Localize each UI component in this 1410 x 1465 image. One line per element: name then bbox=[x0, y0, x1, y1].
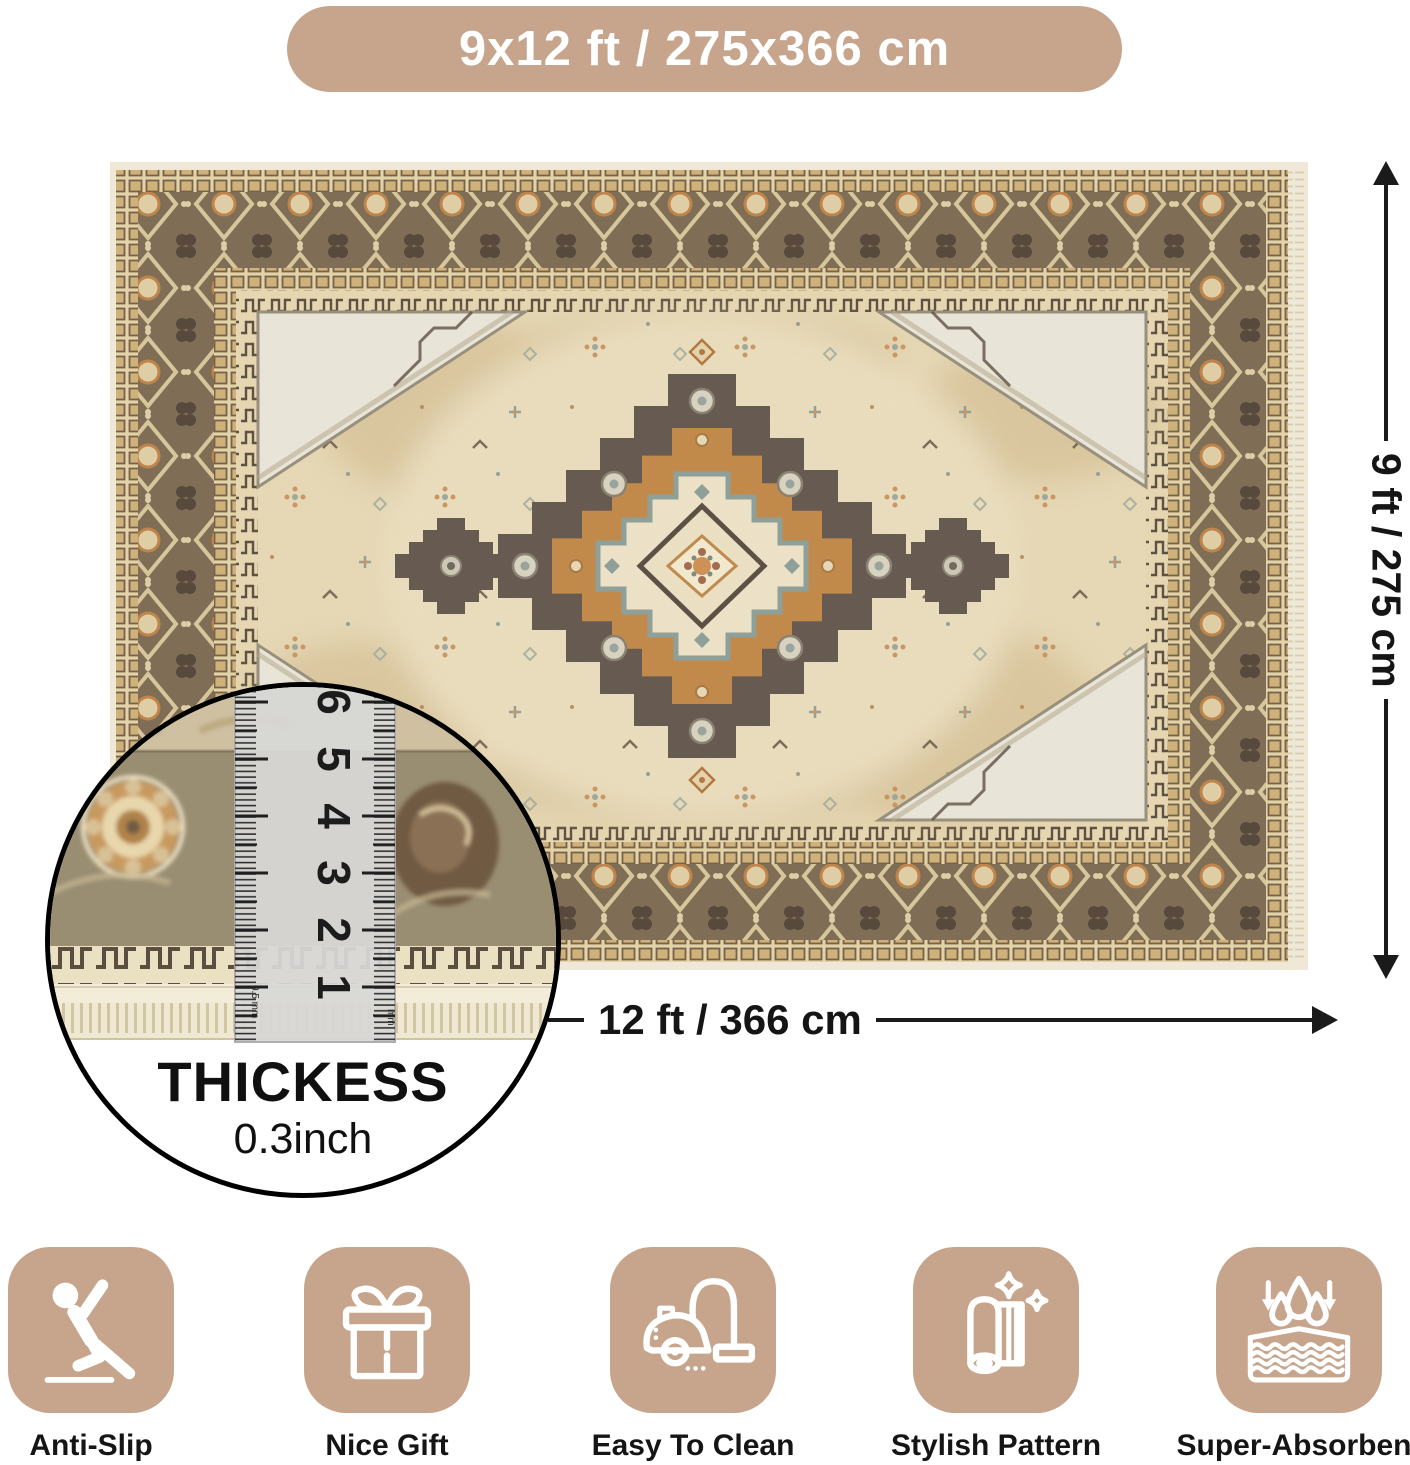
feature-nice-gift: Nice Gift bbox=[257, 1247, 517, 1463]
height-dimension-label: 9 ft / 275 cm bbox=[1363, 441, 1410, 700]
feature-easy-to-clean: Easy To Clean bbox=[563, 1247, 823, 1463]
thickness-inset: 1 2 3 4 5 6 0.5 mm mm THICKESS 0.3inch bbox=[45, 682, 561, 1198]
height-dimension-line bbox=[1384, 699, 1389, 955]
feature-label: Super-Absorbent bbox=[1176, 1429, 1410, 1463]
width-dimension-line bbox=[548, 1018, 584, 1023]
feature-label: Easy To Clean bbox=[592, 1429, 795, 1463]
ruler-number: 3 bbox=[308, 860, 360, 886]
width-dimension-line bbox=[876, 1018, 1312, 1023]
thickness-value: 0.3inch bbox=[234, 1115, 373, 1163]
feature-stylish-pattern: Stylish Pattern bbox=[866, 1247, 1126, 1463]
ruler-number: 5 bbox=[308, 746, 360, 772]
feature-icon-tile bbox=[1216, 1247, 1382, 1413]
thickness-ruler: 1 2 3 4 5 6 0.5 mm mm bbox=[235, 687, 396, 1042]
ruler-number: 4 bbox=[308, 803, 360, 829]
water-drops-icon bbox=[1235, 1266, 1363, 1394]
height-dimension: 9 ft / 275 cm bbox=[1362, 161, 1410, 979]
feature-icon-tile bbox=[913, 1247, 1079, 1413]
arrow-up-icon bbox=[1373, 161, 1399, 185]
width-dimension: 12 ft / 366 cm bbox=[548, 992, 1338, 1048]
ruler-left-unit: 0.5 mm bbox=[249, 985, 260, 1018]
feature-label: Nice Gift bbox=[325, 1429, 448, 1463]
anti-slip-icon bbox=[27, 1266, 155, 1394]
arrow-right-icon bbox=[1312, 1006, 1338, 1034]
ruler-number: 6 bbox=[308, 689, 360, 715]
gift-icon bbox=[323, 1266, 451, 1394]
feature-icon-tile bbox=[610, 1247, 776, 1413]
ruler-number: 1 bbox=[308, 974, 360, 1000]
rug-product-infographic: 9x12 ft / 275x366 cm bbox=[0, 0, 1410, 1465]
size-badge: 9x12 ft / 275x366 cm bbox=[287, 6, 1122, 92]
feature-label: Stylish Pattern bbox=[891, 1429, 1101, 1463]
feature-super-absorbent: Super-Absorbent bbox=[1169, 1247, 1410, 1463]
ruler-number: 2 bbox=[308, 917, 360, 943]
height-dimension-line bbox=[1384, 185, 1389, 441]
rolled-rug-icon bbox=[932, 1266, 1060, 1394]
size-badge-label: 9x12 ft / 275x366 cm bbox=[459, 21, 950, 77]
feature-anti-slip: Anti-Slip bbox=[0, 1247, 221, 1463]
width-dimension-label: 12 ft / 366 cm bbox=[598, 996, 862, 1044]
feature-icon-tile bbox=[304, 1247, 470, 1413]
feature-label: Anti-Slip bbox=[29, 1429, 152, 1463]
ruler-right-unit: mm bbox=[385, 1009, 396, 1026]
arrow-down-icon bbox=[1373, 955, 1399, 979]
thickness-title: THICKESS bbox=[157, 1050, 448, 1113]
feature-icon-tile bbox=[8, 1247, 174, 1413]
vacuum-icon bbox=[629, 1266, 757, 1394]
thickness-magnifier-view: 1 2 3 4 5 6 0.5 mm mm THICKESS 0.3inch bbox=[50, 687, 556, 1193]
